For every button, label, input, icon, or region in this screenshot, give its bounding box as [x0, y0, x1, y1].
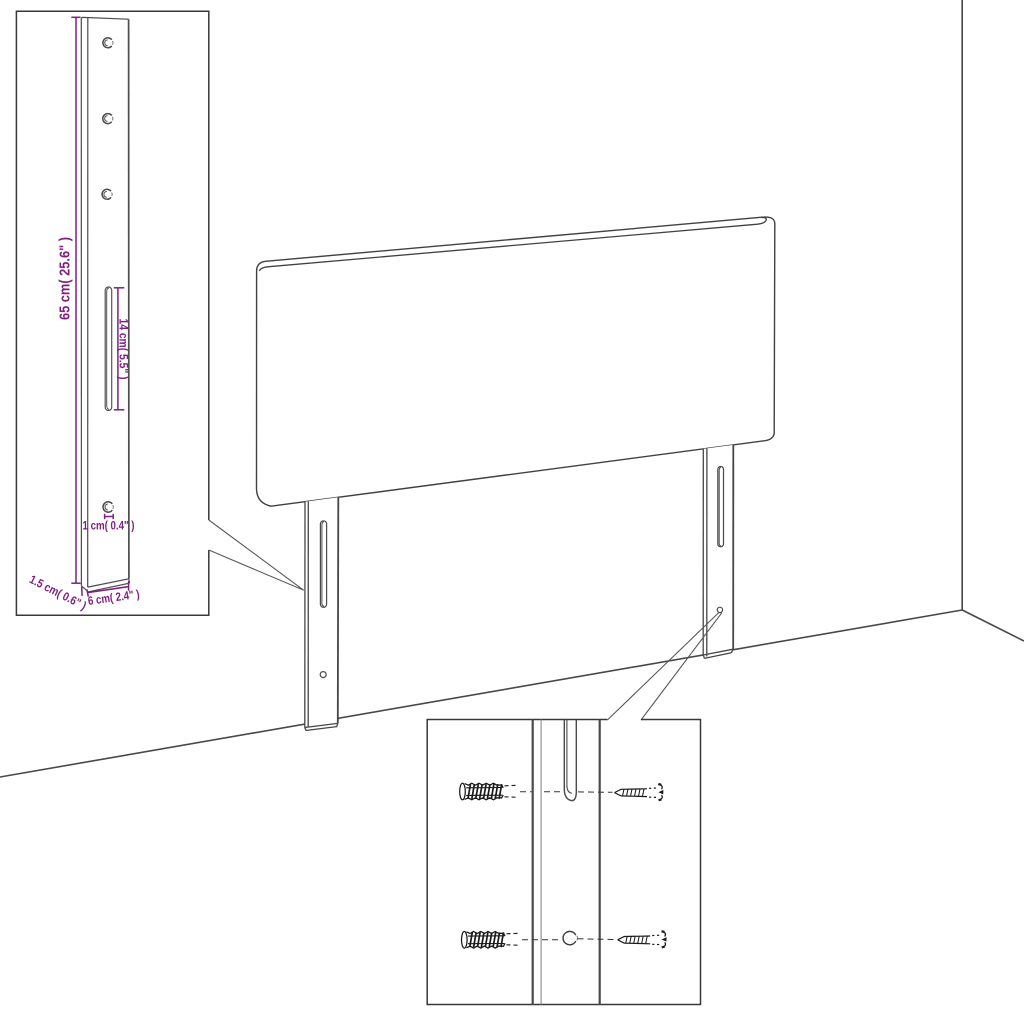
- svg-text:14 cm( 5.5" ): 14 cm( 5.5" ): [117, 319, 131, 380]
- svg-text:1 cm( 0.4" ): 1 cm( 0.4" ): [83, 519, 135, 533]
- svg-text:65 cm( 25.6" ): 65 cm( 25.6" ): [57, 237, 74, 320]
- svg-text:1.5 cm( 0.6" ): 1.5 cm( 0.6" ): [27, 572, 89, 613]
